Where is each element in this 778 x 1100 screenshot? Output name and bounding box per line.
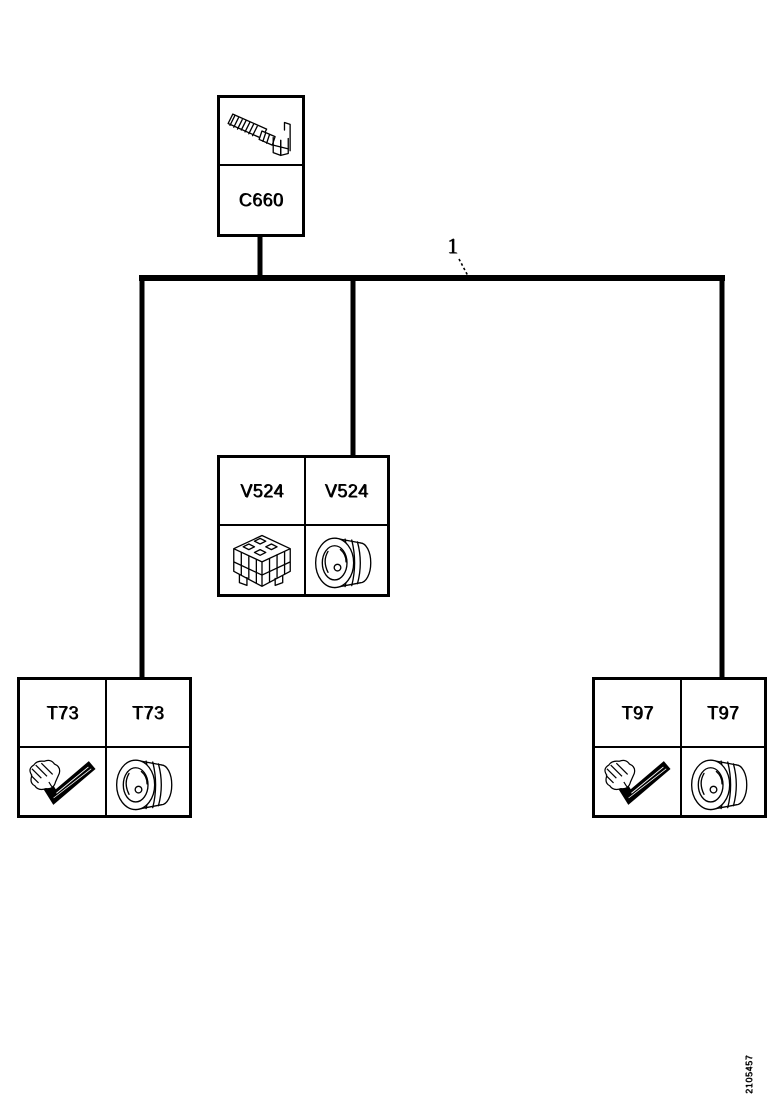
v524-label-right: V524: [306, 458, 387, 526]
c660-terminal-pin-illustration: [220, 98, 302, 166]
c660-label: C660: [220, 166, 302, 234]
node-v524: V524 V524: [217, 455, 390, 597]
v524-label-left: V524: [220, 458, 306, 526]
t97-harness-branch-illustration: [595, 748, 682, 815]
t97-label-left: T97: [595, 680, 682, 748]
node-t97: T97 T97: [592, 677, 767, 818]
t73-label-right: T73: [107, 680, 189, 748]
node-c660: C660: [217, 95, 305, 237]
t97-round-connector-illustration: [682, 748, 764, 815]
v524-round-connector-illustration: [306, 526, 387, 594]
callout-1-label: 1: [447, 235, 458, 257]
diagram-canvas: 1: [0, 0, 778, 1100]
t73-round-connector-illustration: [107, 748, 189, 815]
v524-module-connector-illustration: [220, 526, 306, 594]
t97-label-right: T97: [682, 680, 764, 748]
doc-number: 2105457: [744, 1055, 754, 1094]
t73-label-left: T73: [20, 680, 107, 748]
t73-harness-branch-illustration: [20, 748, 107, 815]
callout-leader-line: [459, 259, 468, 276]
node-t73: T73 T73: [17, 677, 192, 818]
